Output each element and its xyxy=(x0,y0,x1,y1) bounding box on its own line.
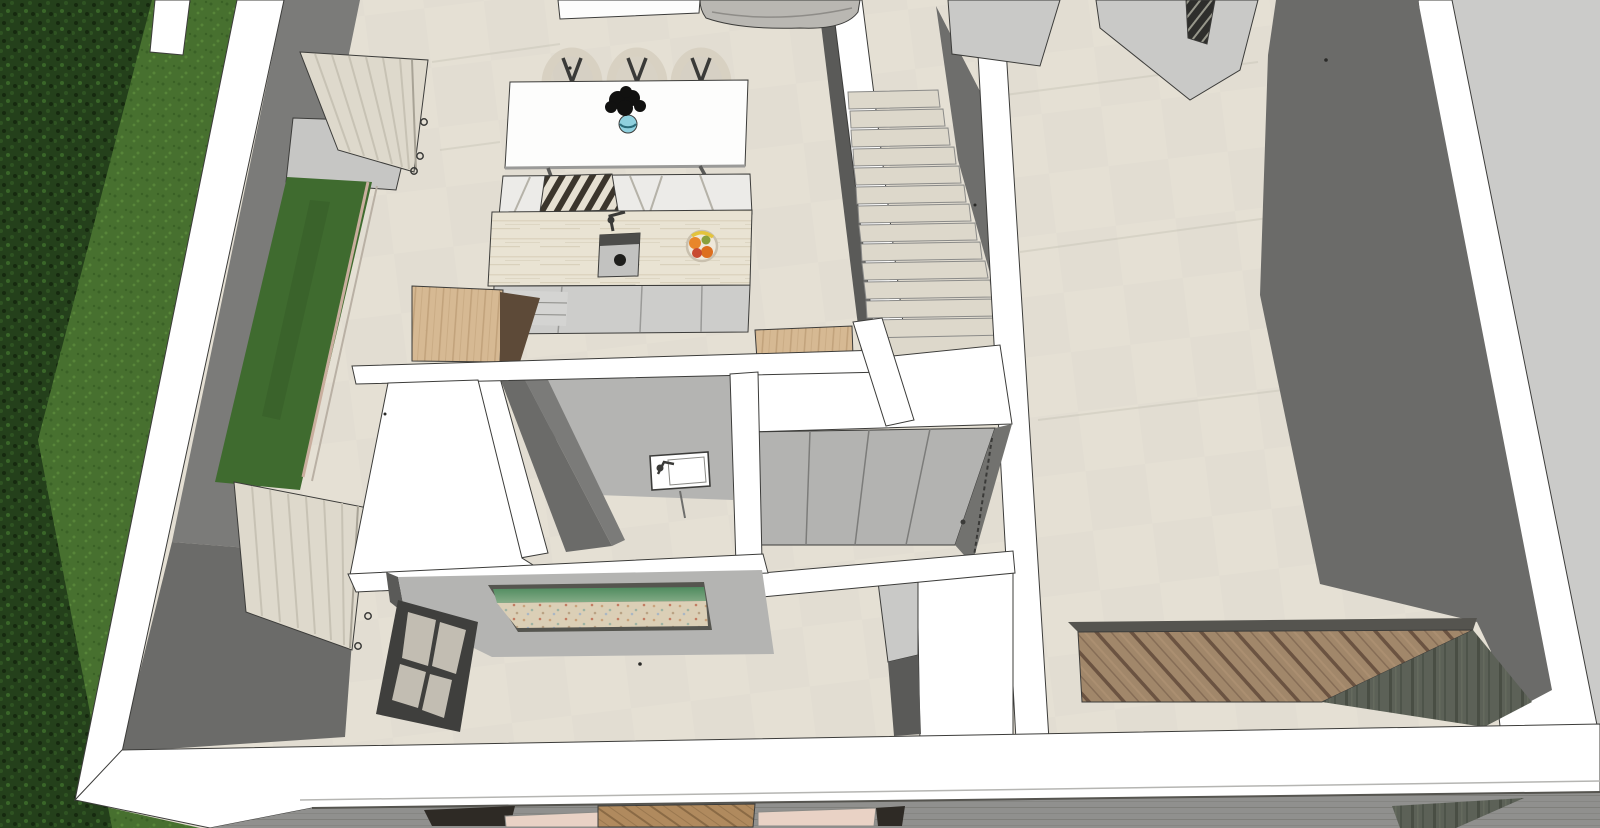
bed-frame-right xyxy=(876,806,905,826)
house-model-svg xyxy=(0,0,1600,828)
bed-headboard xyxy=(598,804,755,827)
beach-wall-art xyxy=(488,582,712,632)
striped-pillow xyxy=(540,174,618,212)
low-wall-panel-a xyxy=(948,0,1060,66)
bench-cushions xyxy=(499,174,752,216)
fruit-bowl xyxy=(687,231,717,261)
wardrobe-handle xyxy=(961,520,966,525)
wardrobe-panels xyxy=(748,428,995,545)
bath-closet-divider-top xyxy=(730,372,762,565)
wood-counter-left xyxy=(412,286,503,362)
wall-block-lower-right xyxy=(917,560,1013,742)
gate-post xyxy=(150,0,190,55)
floorplan-render xyxy=(0,0,1600,828)
